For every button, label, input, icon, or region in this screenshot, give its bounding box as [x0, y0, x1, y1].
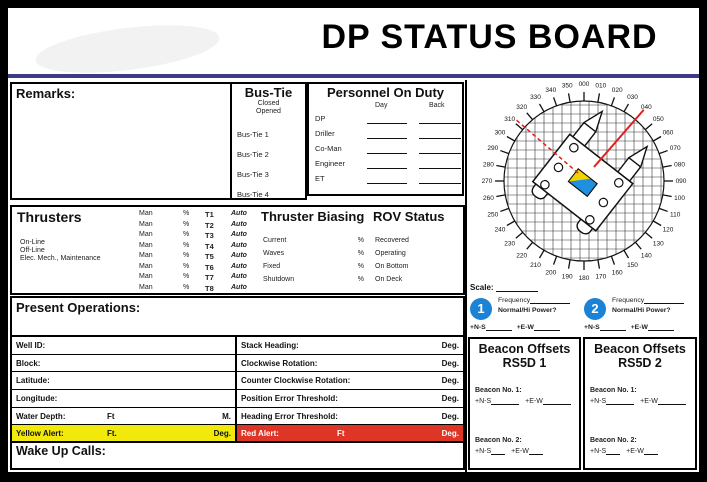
compass-degree-label: 020 — [612, 87, 623, 94]
thruster-man-label: Man — [139, 273, 153, 280]
thruster-auto-label: Auto — [231, 242, 247, 249]
thruster-id-label: T5 — [205, 252, 214, 261]
compass-degree-label: 260 — [483, 195, 494, 202]
personnel-role-label: Engineer — [315, 159, 345, 168]
biasing-label: Shutdown — [263, 276, 294, 283]
beacon-entry-offsets: +N-S+E-W — [590, 397, 686, 405]
beacon-entry-offsets: +N-S+E-W — [475, 397, 571, 405]
thruster-matrix-box: Man%T1AutoMan%T2AutoMan%T3AutoMan%T4Auto… — [133, 205, 260, 295]
thruster-man-label: Man — [139, 210, 153, 217]
compass-degree-label: 070 — [670, 145, 681, 152]
compass-degree-label: 270 — [482, 178, 493, 185]
bus-tie-row-label: Bus-Tie 1 — [237, 130, 305, 139]
personnel-role-label: Driller — [315, 129, 335, 138]
beacon-entry-ns-label: +N-S — [590, 448, 606, 455]
personnel-back-field[interactable] — [419, 123, 461, 124]
info-row-label: Clockwise Rotation: — [241, 359, 317, 368]
thruster-percent-label: % — [183, 284, 189, 291]
info-row: Position Error Threshold:Deg. — [237, 390, 463, 408]
rov-status-box: ROV Status RecoveredOperatingOn BottomOn… — [370, 205, 465, 295]
beacon-entry-ew-field[interactable] — [529, 447, 543, 455]
beacon-entry-label: Beacon No. 2: — [590, 437, 637, 444]
beacon-entry-offsets: +N-S+E-W — [590, 447, 658, 455]
thruster-percent-label: % — [183, 273, 189, 280]
bus-tie-col-closed: Closed — [258, 100, 280, 107]
scale-label: Scale: — [470, 283, 494, 292]
compass-degree-label: 140 — [641, 253, 652, 260]
compass-degree-label: 350 — [562, 83, 573, 90]
info-row-mid-unit: Ft. — [107, 429, 117, 438]
compass-degree-label: 010 — [595, 83, 606, 90]
scale-row: Scale: — [470, 283, 538, 292]
compass-degree-label: 090 — [676, 178, 687, 185]
biasing-row: Current% — [258, 237, 370, 250]
personnel-back-field[interactable] — [419, 168, 461, 169]
biasing-row: Shutdown% — [258, 276, 370, 289]
beacon-entry-ns-field[interactable] — [606, 447, 620, 455]
personnel-day-field[interactable] — [367, 123, 407, 124]
thruster-auto-label: Auto — [231, 273, 247, 280]
compass-degree-label: 180 — [579, 275, 590, 282]
compass-degree-label: 000 — [579, 81, 590, 88]
info-row-label: Yellow Alert: — [16, 429, 64, 438]
thruster-man-label: Man — [139, 252, 153, 259]
thruster-row: Man%T8Auto — [133, 284, 258, 295]
personnel-row: Co-Man — [309, 142, 462, 157]
biasing-unit-label: % — [358, 250, 364, 257]
info-row-right-unit: Deg. — [442, 341, 459, 350]
biasing-label: Waves — [263, 250, 284, 257]
bus-tie-row-label: Bus-Tie 3 — [237, 170, 305, 179]
compass-degree-label: 120 — [663, 227, 674, 234]
thruster-percent-label: % — [183, 221, 189, 228]
personnel-row: Engineer — [309, 157, 462, 172]
biasing-unit-label: % — [358, 263, 364, 270]
beacon-offsets-title: Beacon OffsetsRS5D 2 — [585, 342, 695, 370]
compass-degree-label: 200 — [545, 269, 556, 276]
info-row-right-unit: Deg. — [442, 359, 459, 368]
biasing-label: Fixed — [263, 263, 280, 270]
beacon-offset-row: +N-S+E-W — [584, 323, 674, 331]
personnel-role-label: DP — [315, 114, 325, 123]
info-row-label: Well ID: — [16, 341, 45, 350]
rov-status-label: Operating — [370, 250, 463, 263]
beacon-offsets-subtitle: RS5D 2 — [585, 356, 695, 370]
panel-divider — [465, 80, 467, 472]
bus-tie-row-label: Bus-Tie 2 — [237, 150, 305, 159]
wake-up-calls-box: Wake Up Calls: — [10, 441, 465, 470]
beacon-frequency-label: Frequency — [612, 297, 644, 304]
beacon-entry-ew-label: +E-W — [626, 448, 644, 455]
compass-degree-label: 100 — [674, 195, 685, 202]
info-row: Water Depth:FtM. — [12, 408, 235, 426]
beacon-entry-ns-field[interactable] — [606, 397, 634, 405]
beacon-ew-field[interactable] — [534, 323, 560, 331]
personnel-day-field[interactable] — [367, 168, 407, 169]
compass-degree-label: 320 — [516, 104, 527, 111]
thruster-row: Man%T4Auto — [133, 242, 258, 253]
scale-field[interactable] — [496, 284, 538, 292]
compass-degree-label: 220 — [516, 253, 527, 260]
thruster-auto-label: Auto — [231, 252, 247, 259]
compass-rose: 0000100200300400500600700800901001101201… — [468, 80, 702, 284]
info-row: Counter Clockwise Rotation:Deg. — [237, 372, 463, 390]
biasing-row: Waves% — [258, 250, 370, 263]
thruster-id-label: T1 — [205, 210, 214, 219]
info-row: Well ID: — [12, 337, 235, 355]
rov-status-label: On Bottom — [370, 263, 463, 276]
beacon-entry-ew-field[interactable] — [658, 397, 686, 405]
rov-status-header: ROV Status — [373, 209, 463, 224]
personnel-role-label: Co-Man — [315, 144, 342, 153]
info-row: Stack Heading:Deg. — [237, 337, 463, 355]
beacon-power-mode-label: Normal/Hi Power? — [612, 307, 671, 314]
title-divider — [8, 74, 699, 78]
rov-status-rows: RecoveredOperatingOn BottomOn Deck — [370, 237, 463, 289]
present-operations-box: Present Operations: — [10, 296, 465, 335]
beacon-entry-ew-label: +E-W — [511, 448, 529, 455]
remarks-label: Remarks: — [16, 86, 230, 101]
personnel-day-field[interactable] — [367, 153, 407, 154]
compass-degree-label: 210 — [530, 262, 541, 269]
thruster-auto-label: Auto — [231, 263, 247, 270]
bus-tie-rows: Bus-Tie 1Bus-Tie 2Bus-Tie 3Bus-Tie 4 — [232, 130, 305, 199]
thruster-percent-label: % — [183, 252, 189, 259]
beacon-frequency-row: Frequency — [612, 296, 684, 304]
personnel-back-field[interactable] — [419, 153, 461, 154]
rov-status-label: Recovered — [370, 237, 463, 250]
thruster-man-label: Man — [139, 263, 153, 270]
thruster-percent-label: % — [183, 210, 189, 217]
thrusters-box: Thrusters On-Line Off-Line Elec. Mech., … — [10, 205, 135, 295]
personnel-header: Personnel On Duty — [309, 85, 462, 100]
bus-tie-row-label: Bus-Tie 4 — [237, 190, 305, 199]
beacon-entry-ew-label: +E-W — [525, 398, 543, 405]
beacon-ew-field[interactable] — [648, 323, 674, 331]
thruster-id-label: T4 — [205, 242, 214, 251]
beacon-offsets-box: Beacon OffsetsRS5D 2Beacon No. 1:+N-S+E-… — [583, 337, 697, 470]
info-row-label: Block: — [16, 359, 40, 368]
thrusters-header: Thrusters — [17, 209, 133, 225]
beacon-offsets-subtitle: RS5D 1 — [470, 356, 579, 370]
beacon-frequency-row: Frequency — [498, 296, 570, 304]
beacon-power-mode-label: Normal/Hi Power? — [498, 307, 557, 314]
beacon-ns-field[interactable] — [486, 323, 512, 331]
personnel-col-back: Back — [429, 102, 445, 109]
page-title: DP STATUS BOARD — [297, 18, 682, 57]
thruster-id-label: T7 — [205, 273, 214, 282]
thruster-man-label: Man — [139, 242, 153, 249]
thruster-percent-label: % — [183, 231, 189, 238]
thruster-auto-label: Auto — [231, 231, 247, 238]
thrusters-status-maintenance: Elec. Mech., Maintenance — [20, 255, 133, 263]
thruster-auto-label: Auto — [231, 221, 247, 228]
wake-up-calls-label: Wake Up Calls: — [16, 444, 463, 458]
personnel-col-day: Day — [375, 102, 387, 109]
dp-status-board: DP STATUS BOARD Remarks: Bus-Tie Closed … — [0, 0, 707, 482]
beacon-number-badge: 1 — [470, 298, 492, 320]
compass-degree-label: 280 — [483, 161, 494, 168]
compass-degree-label: 230 — [504, 241, 515, 248]
beacon-frequency-field[interactable] — [530, 296, 570, 304]
thruster-auto-label: Auto — [231, 210, 247, 217]
info-row: Latitude: — [12, 372, 235, 390]
personnel-row: ET — [309, 172, 462, 187]
thruster-row: Man%T6Auto — [133, 263, 258, 274]
info-row-label: Longitude: — [16, 394, 57, 403]
biasing-label: Current — [263, 237, 286, 244]
present-operations-label: Present Operations: — [16, 300, 463, 315]
info-row-mid-unit: Ft — [107, 412, 115, 421]
compass-degree-label: 130 — [653, 241, 664, 248]
beacon-offsets-title: Beacon OffsetsRS5D 1 — [470, 342, 579, 370]
compass-degree-label: 340 — [545, 87, 556, 94]
info-row-label: Water Depth: — [16, 412, 65, 421]
well-info-table: Well ID:Block:Latitude:Longitude:Water D… — [10, 335, 237, 441]
thruster-id-label: T2 — [205, 221, 214, 230]
thruster-biasing-box: Thruster Biasing Current%Waves%Fixed%Shu… — [258, 205, 372, 295]
compass-degree-label: 050 — [653, 116, 664, 123]
thruster-row: Man%T3Auto — [133, 231, 258, 242]
thruster-row: Man%T7Auto — [133, 273, 258, 284]
info-row-label: Latitude: — [16, 376, 50, 385]
thruster-row: Man%T5Auto — [133, 252, 258, 263]
beacon-entry-ew-field[interactable] — [644, 447, 658, 455]
info-row: Longitude: — [12, 390, 235, 408]
thrusters-status-offline: Off-Line — [20, 247, 133, 255]
thruster-id-label: T6 — [205, 263, 214, 272]
info-row-mid-unit: Ft — [337, 429, 345, 438]
personnel-box: Personnel On Duty Day Back DPDrillerCo-M… — [307, 82, 464, 196]
beacon-ew-label: +E-W — [631, 324, 648, 331]
personnel-rows: DPDrillerCo-ManEngineerET — [309, 112, 462, 187]
rov-status-label: On Deck — [370, 276, 463, 289]
beacon-quick-block: 1FrequencyNormal/Hi Power?+N-S+E-W — [470, 294, 582, 334]
compass-degree-label: 060 — [663, 130, 674, 137]
compass-degree-label: 030 — [627, 94, 638, 101]
compass-degree-label: 250 — [487, 211, 498, 218]
thruster-percent-label: % — [183, 263, 189, 270]
info-row-label: Heading Error Threshold: — [241, 412, 338, 421]
personnel-day-field[interactable] — [367, 138, 407, 139]
info-row-label: Stack Heading: — [241, 341, 299, 350]
info-row-right-unit: Deg. — [442, 394, 459, 403]
compass-degree-label: 330 — [530, 94, 541, 101]
compass-degree-label: 160 — [612, 269, 623, 276]
beacon-offset-row: +N-S+E-W — [470, 323, 560, 331]
personnel-day-field[interactable] — [367, 183, 407, 184]
info-row-right-unit: Deg. — [442, 429, 459, 438]
compass-degree-label: 300 — [495, 130, 506, 137]
thruster-row: Man%T2Auto — [133, 221, 258, 232]
beacon-frequency-label: Frequency — [498, 297, 530, 304]
biasing-row: Fixed% — [258, 263, 370, 276]
compass-degree-label: 170 — [595, 274, 606, 281]
beacon-entry-ns-label: +N-S — [475, 398, 491, 405]
biasing-unit-label: % — [358, 276, 364, 283]
thruster-man-label: Man — [139, 284, 153, 291]
info-row: Clockwise Rotation:Deg. — [237, 355, 463, 373]
thruster-percent-label: % — [183, 242, 189, 249]
operations-info-table: Stack Heading:Deg.Clockwise Rotation:Deg… — [237, 335, 465, 441]
beacon-entry-label: Beacon No. 1: — [590, 387, 637, 394]
beacon-entry-label: Beacon No. 1: — [475, 387, 522, 394]
thruster-id-label: T8 — [205, 284, 214, 293]
beacon-entry-ew-field[interactable] — [543, 397, 571, 405]
compass-degree-label: 290 — [487, 145, 498, 152]
compass-degree-label: 310 — [504, 116, 515, 123]
compass-degree-label: 240 — [495, 227, 506, 234]
beacon-ns-label: +N-S — [470, 324, 486, 331]
personnel-row: DP — [309, 112, 462, 127]
info-row-label: Counter Clockwise Rotation: — [241, 376, 350, 385]
beacon-offsets-title-line: Beacon Offsets — [585, 342, 695, 356]
thruster-row: Man%T1Auto — [133, 210, 258, 221]
beacon-ew-label: +E-W — [517, 324, 534, 331]
personnel-back-field[interactable] — [419, 183, 461, 184]
bus-tie-box: Bus-Tie Closed Opened Bus-Tie 1Bus-Tie 2… — [230, 82, 307, 200]
thruster-matrix: Man%T1AutoMan%T2AutoMan%T3AutoMan%T4Auto… — [133, 210, 258, 294]
thruster-man-label: Man — [139, 221, 153, 228]
thruster-auto-label: Auto — [231, 284, 247, 291]
personnel-back-field[interactable] — [419, 138, 461, 139]
thruster-man-label: Man — [139, 231, 153, 238]
beacon-entry-ns-label: +N-S — [590, 398, 606, 405]
thruster-id-label: T3 — [205, 231, 214, 240]
info-row: Heading Error Threshold:Deg. — [237, 408, 463, 426]
info-row-right-unit: Deg. — [214, 429, 231, 438]
beacon-quick-block: 2FrequencyNormal/Hi Power?+N-S+E-W — [584, 294, 696, 334]
compass-degree-label: 080 — [674, 161, 685, 168]
beacon-ns-field[interactable] — [600, 323, 626, 331]
beacon-entry-ns-label: +N-S — [475, 448, 491, 455]
thruster-biasing-header: Thruster Biasing — [261, 209, 370, 224]
compass-degree-label: 190 — [562, 274, 573, 281]
info-row-label: Red Alert: — [241, 429, 279, 438]
beacon-frequency-field[interactable] — [644, 296, 684, 304]
personnel-role-label: ET — [315, 174, 325, 183]
biasing-unit-label: % — [358, 237, 364, 244]
remarks-box: Remarks: — [10, 82, 232, 200]
beacon-entry-label: Beacon No. 2: — [475, 437, 522, 444]
beacon-entry-offsets: +N-S+E-W — [475, 447, 543, 455]
bus-tie-col-opened: Opened — [256, 108, 281, 115]
beacon-entry-ew-label: +E-W — [640, 398, 658, 405]
beacon-entry-ns-field[interactable] — [491, 447, 505, 455]
compass-degree-label: 150 — [627, 262, 638, 269]
info-row-right-unit: Deg. — [442, 412, 459, 421]
bus-tie-header: Bus-Tie — [232, 85, 305, 100]
info-row-right-unit: Deg. — [442, 376, 459, 385]
beacon-ns-label: +N-S — [584, 324, 600, 331]
beacon-offsets-box: Beacon OffsetsRS5D 1Beacon No. 1:+N-S+E-… — [468, 337, 581, 470]
thruster-biasing-rows: Current%Waves%Fixed%Shutdown% — [258, 237, 370, 289]
info-row-right-unit: M. — [222, 412, 231, 421]
info-row-label: Position Error Threshold: — [241, 394, 338, 403]
beacon-offsets-title-line: Beacon Offsets — [470, 342, 579, 356]
personnel-row: Driller — [309, 127, 462, 142]
beacon-number-badge: 2 — [584, 298, 606, 320]
compass-degree-label: 110 — [670, 211, 681, 218]
thrusters-status-online: On-Line — [20, 239, 133, 247]
beacon-entry-ns-field[interactable] — [491, 397, 519, 405]
info-row: Block: — [12, 355, 235, 373]
heading-compass: 0000100200300400500600700800901001101201… — [468, 80, 702, 284]
